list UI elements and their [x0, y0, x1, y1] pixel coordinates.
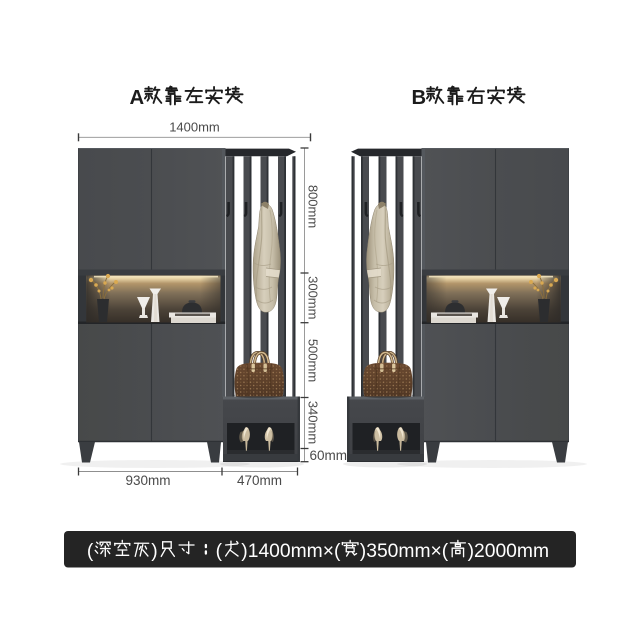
svg-text:60mm: 60mm	[310, 448, 348, 463]
svg-text:)1400mm×(: )1400mm×(	[241, 541, 341, 562]
svg-text:(: (	[216, 541, 223, 562]
svg-text:)350mm×(: )350mm×(	[360, 541, 449, 562]
svg-text:): )	[151, 541, 157, 562]
svg-text:500mm: 500mm	[306, 339, 321, 382]
svg-text:800mm: 800mm	[306, 185, 321, 228]
svg-text:930mm: 930mm	[126, 473, 171, 488]
svg-text:470mm: 470mm	[237, 473, 282, 488]
svg-text:340mm: 340mm	[306, 401, 321, 444]
svg-text:300mm: 300mm	[306, 276, 321, 319]
svg-text:B: B	[412, 87, 427, 109]
svg-text:1400mm: 1400mm	[169, 120, 220, 135]
svg-text:)2000mm: )2000mm	[468, 541, 549, 562]
svg-text:(: (	[87, 541, 94, 562]
svg-text:A: A	[130, 87, 145, 109]
